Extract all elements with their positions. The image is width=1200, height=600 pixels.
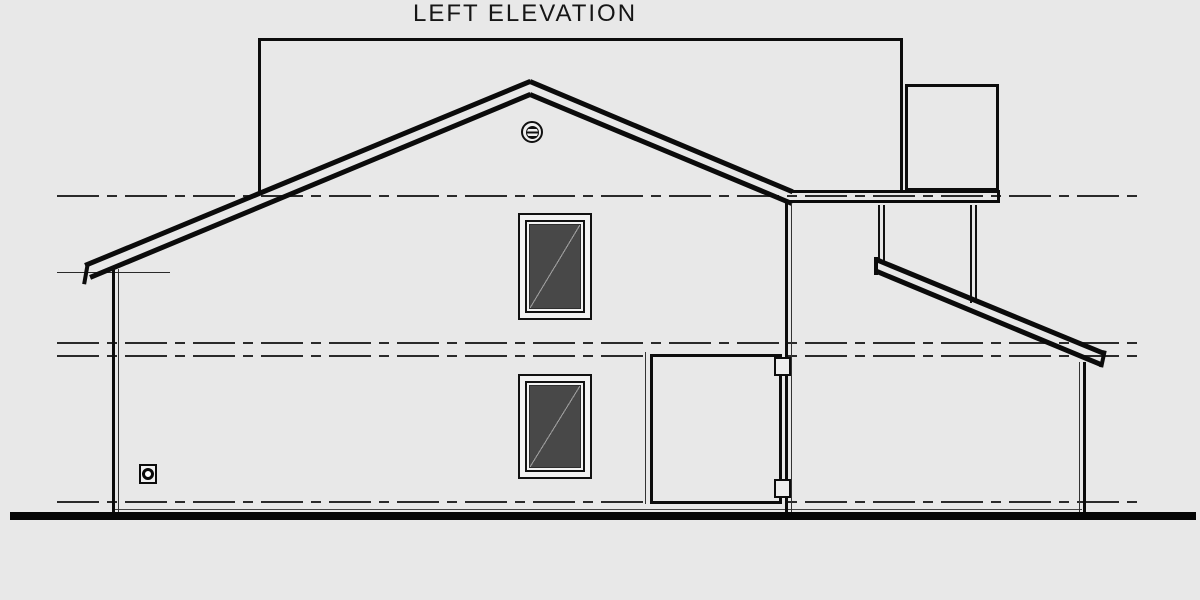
upper-floor-window bbox=[518, 213, 592, 320]
gate-hinge-bracket-top bbox=[774, 357, 791, 376]
drawing-title: LEFT ELEVATION bbox=[0, 0, 1050, 28]
shed-roof-left-cap bbox=[874, 257, 878, 275]
shed-hanger-rod-left-a bbox=[878, 205, 880, 262]
porch-post-inner-line bbox=[1079, 362, 1080, 512]
left-wall-inner-line bbox=[118, 269, 119, 512]
porch-post-line bbox=[1083, 362, 1086, 512]
fascia-bottom-line bbox=[789, 200, 1000, 203]
upper-window-glass bbox=[529, 224, 581, 309]
fascia-end-cap bbox=[997, 190, 1000, 203]
left-wall-line bbox=[112, 267, 115, 512]
main-window-frame bbox=[525, 381, 585, 472]
elevation-drawing-canvas: LEFT ELEVATION bbox=[0, 0, 1200, 600]
shed-roof-outer-band bbox=[875, 257, 1105, 355]
main-floor-window bbox=[518, 374, 592, 479]
gate-panel bbox=[650, 354, 782, 504]
wall-vent-icon bbox=[139, 464, 157, 484]
right-corner-wall-inner-line bbox=[791, 203, 792, 512]
roof-left-eave-cap bbox=[82, 263, 90, 284]
shed-hanger-rod-right-a bbox=[970, 205, 972, 303]
gable-vent-icon bbox=[521, 121, 543, 143]
gate-offset-line bbox=[645, 352, 646, 504]
rear-extension-outline bbox=[905, 84, 999, 191]
wall-vent-ring bbox=[142, 468, 154, 480]
datum-line-second-floor-upper bbox=[57, 342, 1140, 344]
shed-hanger-rod-left-b bbox=[883, 205, 885, 262]
main-window-glass bbox=[529, 385, 581, 468]
ground-line bbox=[10, 512, 1196, 520]
datum-line-first-floor bbox=[57, 501, 1140, 503]
shed-hanger-rod-right-b bbox=[975, 205, 977, 303]
datum-line-second-floor-lower bbox=[57, 355, 1140, 357]
gate-hinge-bracket-bottom bbox=[774, 479, 791, 498]
floor-line bbox=[115, 509, 1082, 510]
shed-roof-inner-band bbox=[876, 269, 1102, 366]
gable-vent-louvers bbox=[526, 126, 539, 139]
fascia-top-line bbox=[789, 190, 1000, 193]
datum-line-upper-plate bbox=[57, 195, 1140, 197]
upper-window-frame bbox=[525, 220, 585, 313]
